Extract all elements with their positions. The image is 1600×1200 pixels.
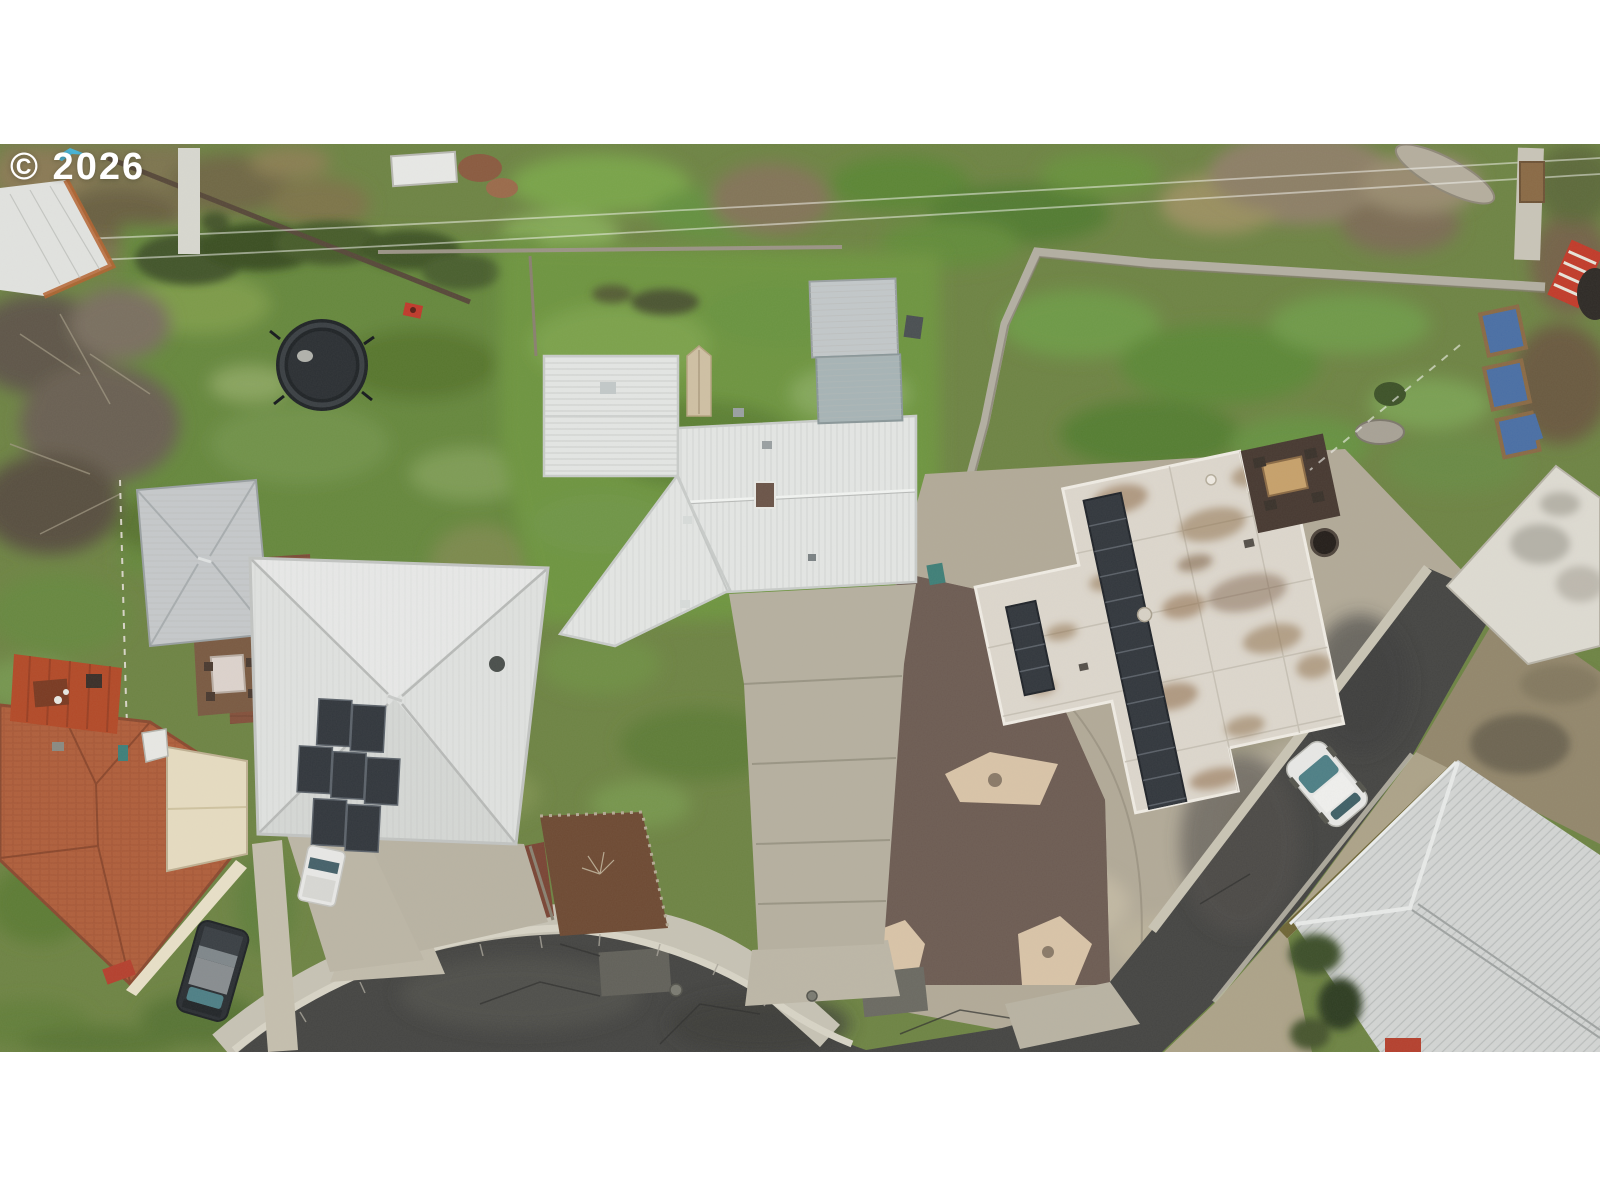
watermark: © 2026 xyxy=(10,148,145,186)
page: { "watermark": { "text": "© 2026", "colo… xyxy=(0,0,1600,1200)
aerial-photo xyxy=(0,144,1600,1052)
photo-grain xyxy=(0,144,1600,1052)
